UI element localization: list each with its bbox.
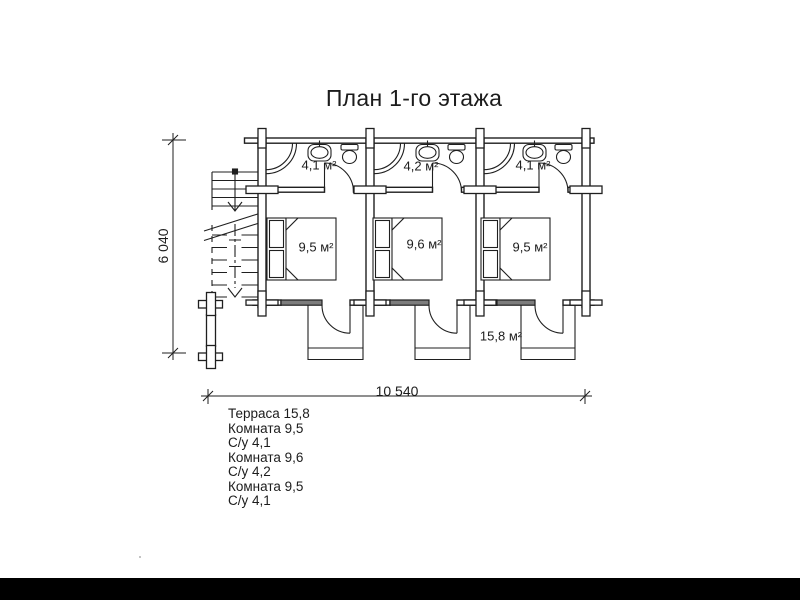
left-wall [258, 138, 266, 308]
floor-plan-page: План 1-го этажа 4,1 м² 4,2 м² 4,1 м² 9,5… [0, 0, 800, 600]
window-3 [497, 300, 535, 305]
footer-bar [0, 578, 800, 600]
stair-arrow-down [228, 224, 242, 297]
room-1-area-label: 9,5 м² [299, 240, 334, 255]
window-1 [281, 300, 322, 305]
bathroom-2-area-label: 4,2 м² [404, 159, 439, 174]
stray-dot [139, 556, 141, 558]
legend-line: Терраса 15,8 [228, 407, 310, 422]
window-2 [390, 300, 429, 305]
legend-line: С/у 4,2 [228, 465, 310, 480]
top-wall [245, 138, 595, 143]
bathroom-3-area-label: 4,1 м² [516, 158, 551, 173]
room-2-area-label: 9,6 м² [407, 237, 442, 252]
legend-line: С/у 4,1 [228, 494, 310, 509]
legend-line: Комната 9,6 [228, 451, 310, 466]
terrace-area-label: 15,8 м² [480, 329, 522, 344]
stair-arrow-up [228, 169, 242, 211]
room-3-area-label: 9,5 м² [513, 240, 548, 255]
bathroom-1-area-label: 4,1 м² [302, 158, 337, 173]
legend: Терраса 15,8 Комната 9,5 С/у 4,1 Комната… [228, 407, 310, 509]
entrance-doors [322, 305, 563, 333]
windows [281, 300, 535, 305]
legend-line: Комната 9,5 [228, 480, 310, 495]
porch-steps [308, 305, 575, 360]
right-wall [582, 138, 590, 308]
page-title: План 1-го этажа [326, 85, 502, 112]
dimension-width-label: 10 540 [376, 383, 419, 399]
legend-line: Комната 9,5 [228, 422, 310, 437]
terrace-posts [199, 293, 223, 369]
dimension-height-label: 6 040 [155, 228, 171, 263]
legend-line: С/у 4,1 [228, 436, 310, 451]
